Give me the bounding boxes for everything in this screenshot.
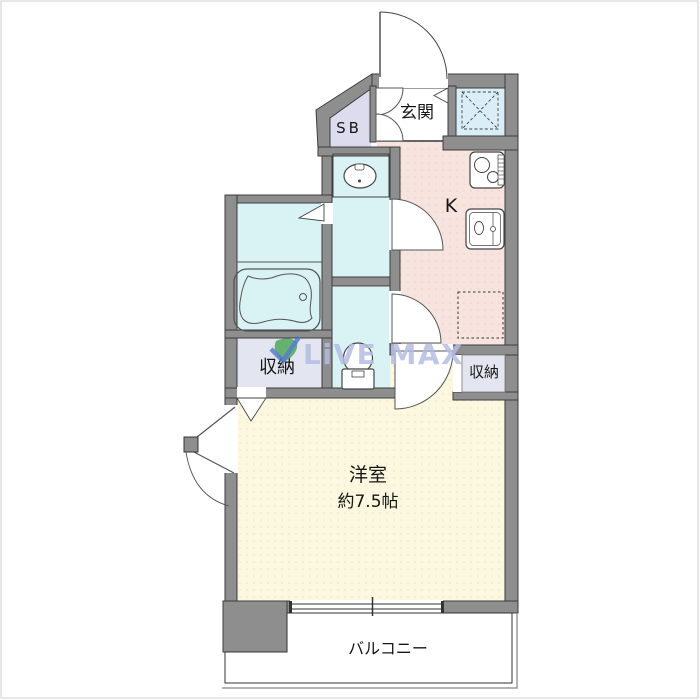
wall-bath-top: [225, 195, 332, 203]
wall-ps-left: [448, 86, 456, 136]
wall-storage-right-bottom: [453, 392, 518, 400]
opening-entrance: [379, 73, 448, 88]
kitchen-sink-icon: [466, 209, 504, 249]
main-room-size-label: 約7.5帖: [337, 492, 398, 512]
wall-sb-entrance: [370, 86, 376, 142]
main-room-label: 洋室: [349, 464, 387, 486]
wall-corner-block: [223, 601, 287, 652]
opening-storage-left: [237, 387, 266, 399]
floor-plan-page: 玄関 SB K 収納 収納 洋室 約7.5帖 バルコニー LiVE MAX: [0, 0, 700, 700]
balcony-label: バルコニー: [348, 639, 428, 658]
wall-right: [505, 74, 518, 613]
kitchen-label: K: [445, 195, 458, 217]
shoe-box-label: SB: [336, 119, 362, 137]
wall-sb-bottom: [318, 147, 400, 156]
opening-window: [224, 405, 238, 473]
stove-icon: [470, 152, 504, 188]
watermark-text: LiVE MAX: [303, 338, 464, 371]
entrance-label: 玄関: [400, 103, 434, 123]
bathroom-area: [237, 203, 322, 330]
opening-balcony-window: [290, 600, 443, 614]
wall-washroom-toilet: [332, 277, 390, 286]
storage-left-label: 収納: [259, 357, 295, 378]
floor-plan-drawing: 玄関 SB K 収納 収納 洋室 約7.5帖 バルコニー LiVE MAX: [0, 0, 700, 700]
wall-under-ps: [443, 136, 518, 150]
storage-right-label: 収納: [469, 363, 499, 381]
